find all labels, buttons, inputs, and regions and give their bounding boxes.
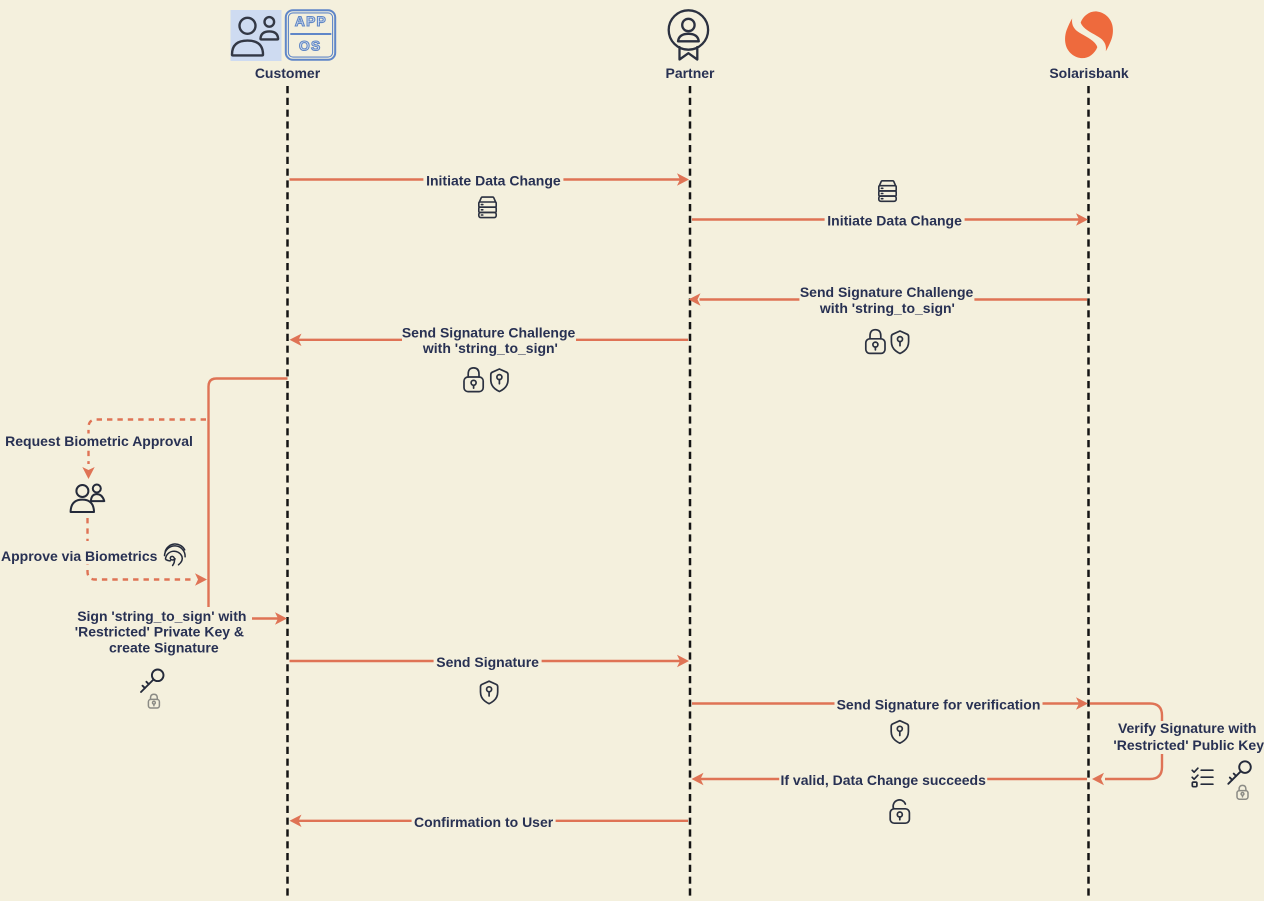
svg-text:Request Biometric Approval: Request Biometric Approval <box>5 433 193 449</box>
svg-text:Initiate Data Change: Initiate Data Change <box>426 173 561 189</box>
svg-text:with 'string_to_sign': with 'string_to_sign' <box>422 340 558 356</box>
svg-text:Partner: Partner <box>665 65 715 81</box>
svg-text:APP: APP <box>295 14 327 29</box>
svg-text:Sign 'string_to_sign' with: Sign 'string_to_sign' with <box>77 608 246 624</box>
svg-text:with 'string_to_sign': with 'string_to_sign' <box>819 300 955 316</box>
svg-text:Customer: Customer <box>255 65 321 81</box>
svg-text:create Signature: create Signature <box>109 640 219 656</box>
svg-text:Send Signature: Send Signature <box>436 654 539 670</box>
svg-text:Send Signature Challenge: Send Signature Challenge <box>402 324 576 340</box>
svg-text:Approve via Biometrics: Approve via Biometrics <box>1 548 158 564</box>
svg-text:OS: OS <box>299 38 321 53</box>
svg-text:Verify Signature with: Verify Signature with <box>1118 720 1256 736</box>
svg-text:Confirmation to User: Confirmation to User <box>414 814 554 830</box>
svg-text:If valid, Data Change succeeds: If valid, Data Change succeeds <box>780 772 986 788</box>
svg-text:'Restricted' Private Key &: 'Restricted' Private Key & <box>75 624 244 640</box>
svg-text:Send Signature Challenge: Send Signature Challenge <box>800 284 974 300</box>
svg-text:'Restricted' Public Key: 'Restricted' Public Key <box>1113 737 1264 753</box>
svg-text:Solarisbank: Solarisbank <box>1049 65 1129 81</box>
svg-text:Initiate Data Change: Initiate Data Change <box>827 213 962 229</box>
svg-text:Send Signature for verificatio: Send Signature for verification <box>837 697 1041 713</box>
